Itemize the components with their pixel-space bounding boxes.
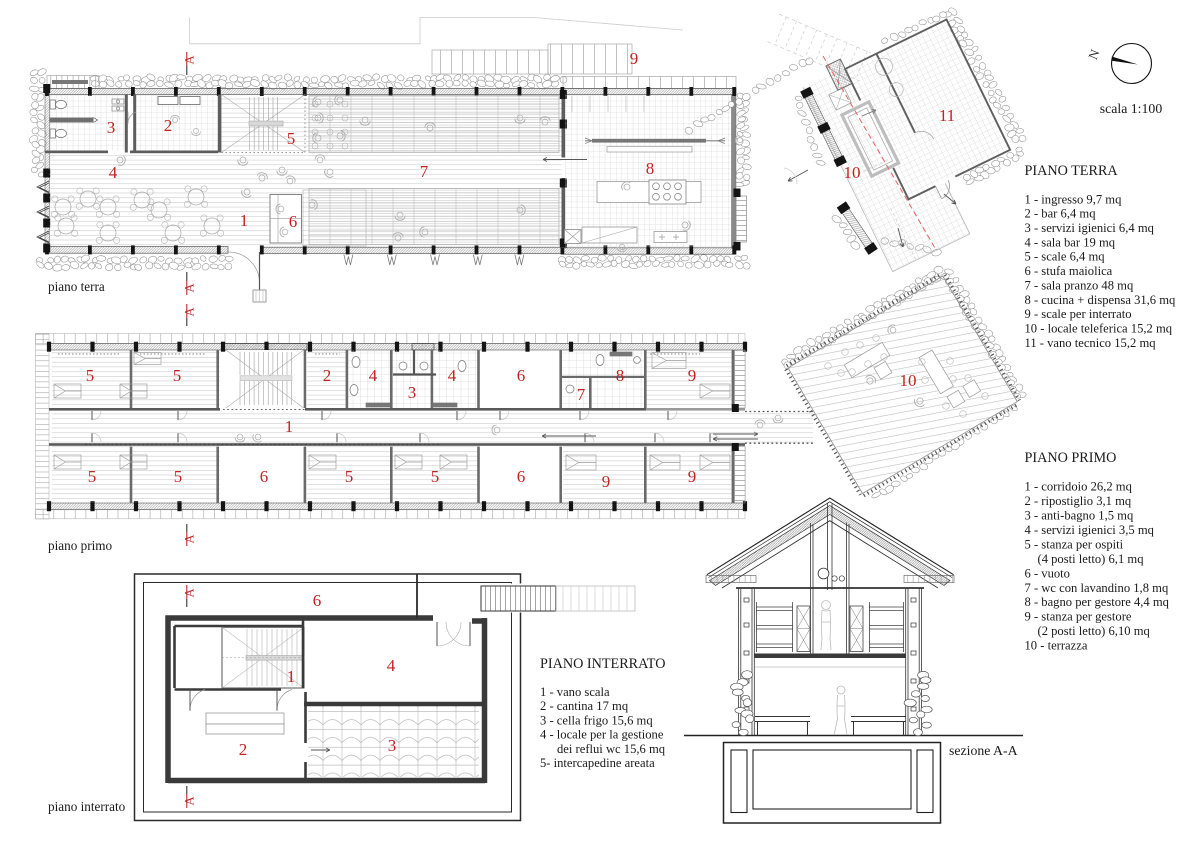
svg-text:4: 4 <box>369 366 378 385</box>
svg-text:5 - stanza per ospiti: 5 - stanza per ospiti <box>1025 537 1124 551</box>
svg-text:6: 6 <box>517 467 526 486</box>
svg-text:1: 1 <box>287 667 296 686</box>
svg-text:10: 10 <box>844 163 861 182</box>
svg-text:A: A <box>183 283 197 292</box>
svg-text:4 - sala bar 19 mq: 4 - sala bar 19 mq <box>1025 235 1116 249</box>
svg-text:9 - scale per interrato: 9 - scale per interrato <box>1025 307 1132 321</box>
svg-text:1 - vano scala: 1 - vano scala <box>540 685 610 699</box>
svg-text:1: 1 <box>285 417 294 436</box>
svg-text:5: 5 <box>174 467 183 486</box>
svg-text:4: 4 <box>448 366 457 385</box>
svg-text:piano primo: piano primo <box>48 538 113 553</box>
svg-text:4: 4 <box>109 163 118 182</box>
svg-text:8 - cucina + dispensa 31,6 mq: 8 - cucina + dispensa 31,6 mq <box>1025 293 1177 307</box>
svg-text:2: 2 <box>239 740 248 759</box>
svg-text:6: 6 <box>517 366 526 385</box>
svg-text:5 - scale 6,4 mq: 5 - scale 6,4 mq <box>1025 250 1106 264</box>
svg-text:8 - bagno per gestore 4,4 mq: 8 - bagno per gestore 4,4 mq <box>1025 595 1170 609</box>
svg-text:6: 6 <box>313 591 322 610</box>
svg-text:5: 5 <box>287 129 296 148</box>
svg-text:A: A <box>183 796 197 805</box>
svg-text:9: 9 <box>688 467 697 486</box>
svg-text:scala 1:100: scala 1:100 <box>1100 101 1163 116</box>
svg-text:5: 5 <box>431 467 440 486</box>
svg-text:2 - ripostiglio 3,1 mq: 2 - ripostiglio 3,1 mq <box>1025 494 1132 508</box>
svg-text:(4 posti letto) 6,1 mq: (4 posti letto) 6,1 mq <box>1038 552 1145 566</box>
svg-text:A: A <box>183 534 197 543</box>
svg-text:3: 3 <box>408 383 417 402</box>
svg-text:A: A <box>183 55 197 64</box>
svg-text:dei reflui wc 15,6 mq: dei reflui wc 15,6 mq <box>557 742 666 756</box>
svg-text:PIANO INTERRATO: PIANO INTERRATO <box>540 656 665 672</box>
svg-text:sezione A-A: sezione A-A <box>949 743 1018 758</box>
svg-text:1 - corridoio 26,2 mq: 1 - corridoio 26,2 mq <box>1025 480 1133 494</box>
svg-text:piano terra: piano terra <box>48 279 105 294</box>
svg-text:8: 8 <box>646 159 655 178</box>
svg-text:11 - vano tecnico 15,2 mq: 11 - vano tecnico 15,2 mq <box>1025 336 1157 350</box>
svg-text:1: 1 <box>240 211 249 230</box>
svg-text:3 - anti-bagno 1,5 mq: 3 - anti-bagno 1,5 mq <box>1025 509 1134 523</box>
svg-text:PIANO PRIMO: PIANO PRIMO <box>1025 450 1117 466</box>
svg-text:7 - sala pranzo 48 mq: 7 - sala pranzo 48 mq <box>1025 278 1134 292</box>
svg-text:7: 7 <box>420 162 429 181</box>
svg-text:7 - wc con lavandino 1,8 mq: 7 - wc con lavandino 1,8 mq <box>1025 581 1169 595</box>
svg-text:2: 2 <box>323 366 332 385</box>
svg-text:11: 11 <box>939 106 955 125</box>
svg-text:9: 9 <box>602 472 611 491</box>
svg-text:3: 3 <box>107 118 116 137</box>
svg-text:piano interrato: piano interrato <box>48 799 126 814</box>
svg-text:1 - ingresso 9,7 mq: 1 - ingresso 9,7 mq <box>1025 192 1123 206</box>
svg-text:6 - vuoto: 6 - vuoto <box>1025 566 1070 580</box>
svg-text:(2 posti letto) 6,10 mq: (2 posti letto) 6,10 mq <box>1038 624 1151 638</box>
svg-text:PIANO TERRA: PIANO TERRA <box>1025 163 1119 179</box>
svg-text:9: 9 <box>688 366 697 385</box>
svg-text:4: 4 <box>387 656 396 675</box>
svg-text:10 - locale teleferica 15,2 mq: 10 - locale teleferica 15,2 mq <box>1025 321 1173 335</box>
svg-text:2: 2 <box>164 116 173 135</box>
svg-text:5: 5 <box>173 366 182 385</box>
svg-text:5: 5 <box>345 467 354 486</box>
svg-text:7: 7 <box>577 385 586 404</box>
svg-text:4 - locale per la gestione: 4 - locale per la gestione <box>540 728 664 742</box>
svg-text:6: 6 <box>289 212 298 231</box>
svg-text:3 - servizi igienici 6,4 mq: 3 - servizi igienici 6,4 mq <box>1025 221 1155 235</box>
svg-text:6: 6 <box>260 467 269 486</box>
svg-text:2 - bar 6,4 mq: 2 - bar 6,4 mq <box>1025 207 1097 221</box>
svg-text:A: A <box>183 588 197 597</box>
svg-text:3: 3 <box>388 736 397 755</box>
svg-text:A: A <box>183 307 197 316</box>
svg-text:9: 9 <box>630 49 639 68</box>
svg-text:10 - terrazza: 10 - terrazza <box>1025 639 1088 653</box>
svg-text:4 - servizi igienici 3,5 mq: 4 - servizi igienici 3,5 mq <box>1025 523 1155 537</box>
svg-text:8: 8 <box>616 366 625 385</box>
svg-text:5: 5 <box>86 366 95 385</box>
svg-text:5: 5 <box>88 467 97 486</box>
svg-text:2 - cantina 17 mq: 2 - cantina 17 mq <box>540 699 629 713</box>
svg-text:10: 10 <box>900 371 917 390</box>
svg-text:6 - stufa maiolica: 6 - stufa maiolica <box>1025 264 1113 278</box>
svg-text:9 - stanza per gestore: 9 - stanza per gestore <box>1025 610 1132 624</box>
svg-text:5- intercapedine areata: 5- intercapedine areata <box>540 756 655 770</box>
svg-text:3 - cella frigo 15,6 mq: 3 - cella frigo 15,6 mq <box>540 713 653 727</box>
